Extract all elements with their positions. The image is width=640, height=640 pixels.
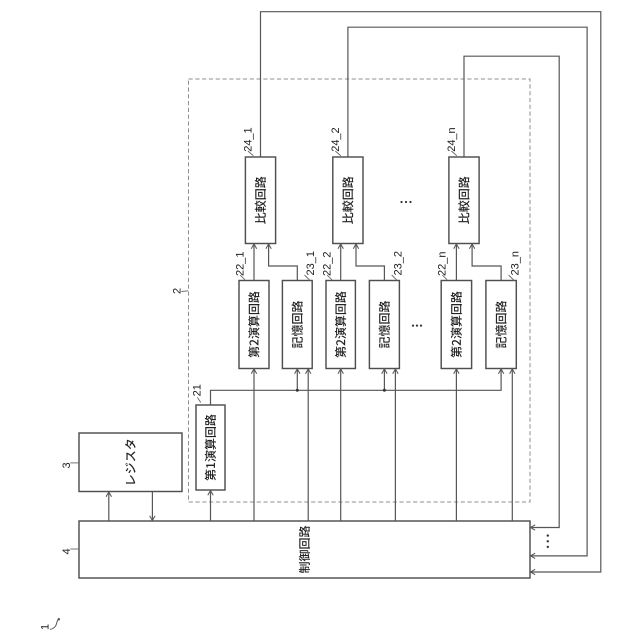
svg-text:21: 21 xyxy=(192,384,204,396)
svg-text:24_1: 24_1 xyxy=(243,127,255,151)
svg-text:23_n: 23_n xyxy=(509,251,521,275)
svg-text:23_1: 23_1 xyxy=(305,251,317,275)
svg-text:24_2: 24_2 xyxy=(330,127,342,151)
svg-text:1: 1 xyxy=(40,624,52,630)
svg-text:24_n: 24_n xyxy=(446,127,458,151)
svg-text:23_2: 23_2 xyxy=(392,251,404,275)
svg-text:22_n: 22_n xyxy=(437,252,449,276)
svg-text:22_2: 22_2 xyxy=(322,252,334,276)
svg-text:22_1: 22_1 xyxy=(235,252,247,276)
svg-text:2: 2 xyxy=(172,288,184,294)
